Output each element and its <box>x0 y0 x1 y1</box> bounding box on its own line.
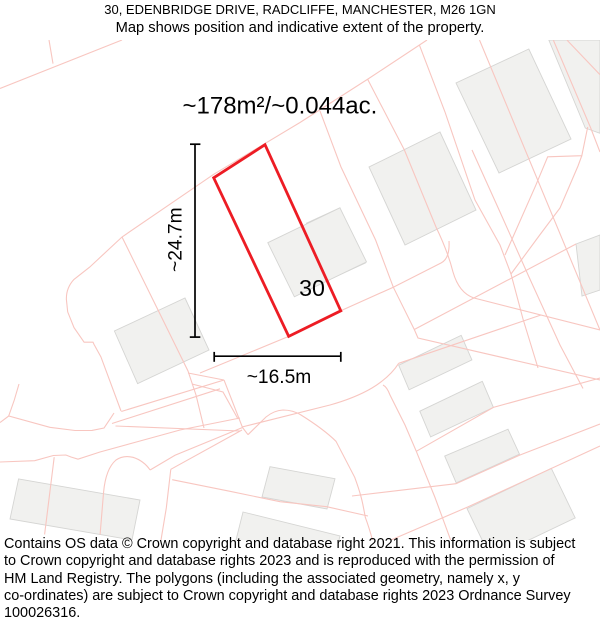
svg-text:~24.7m: ~24.7m <box>166 207 187 272</box>
svg-text:~178m²/~0.044ac.: ~178m²/~0.044ac. <box>183 93 378 120</box>
svg-text:30: 30 <box>299 275 325 301</box>
svg-text:~16.5m: ~16.5m <box>247 367 312 388</box>
